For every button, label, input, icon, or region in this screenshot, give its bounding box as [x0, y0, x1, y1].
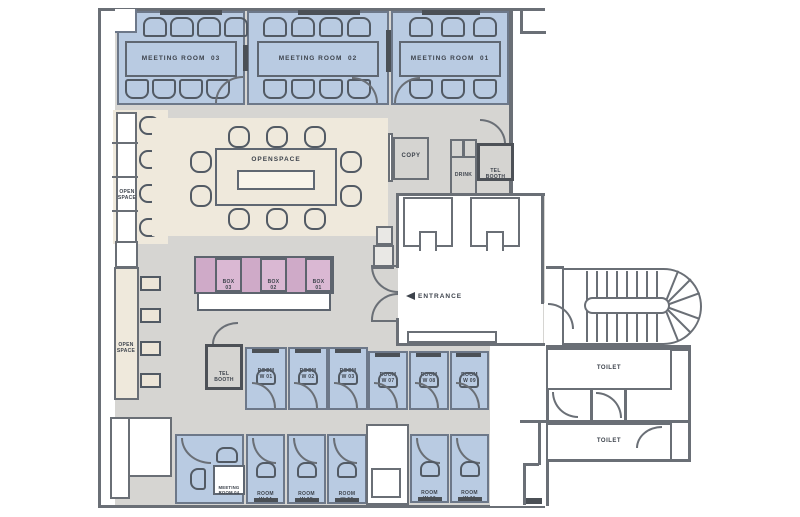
window-icon [160, 10, 222, 15]
wall [541, 196, 544, 304]
door-jamb [386, 30, 391, 72]
shaft-box [371, 468, 401, 498]
window-icon [295, 349, 321, 353]
stool-icon [140, 276, 161, 291]
storage-room-leg [110, 417, 130, 499]
chair-icon [216, 447, 238, 463]
chair-icon [224, 17, 248, 37]
chair-icon [347, 17, 371, 37]
wall [396, 343, 545, 346]
chair-icon [197, 17, 221, 37]
window-icon [416, 353, 441, 357]
chair-icon [266, 126, 288, 148]
chair-icon [319, 17, 343, 37]
wall [546, 462, 549, 506]
door-jamb [243, 45, 248, 71]
entry-mat [407, 331, 497, 343]
chair-icon [190, 185, 212, 207]
chair-icon [340, 151, 362, 173]
chair-icon [337, 462, 357, 478]
copy-label: COPY [393, 153, 429, 161]
window-icon [295, 498, 319, 502]
chair-icon [291, 17, 315, 37]
wall [546, 390, 549, 423]
chair-icon [143, 17, 167, 37]
openspace-table-inset [237, 170, 315, 190]
window-icon [456, 353, 481, 357]
window-icon [335, 498, 359, 502]
meeting-room-04-label: MEETINGROOM 04 [213, 474, 245, 495]
wall [688, 348, 691, 462]
tel-booth-top-label: TELBOOTH [477, 155, 514, 193]
window-icon [335, 349, 361, 353]
stool-icon [140, 308, 161, 323]
chair-icon [179, 79, 203, 99]
door-arc-icon [596, 392, 622, 418]
chair-icon [409, 17, 433, 37]
entrance-label: ENTRANCE [418, 293, 482, 301]
chair-icon [441, 79, 465, 99]
stool-icon [140, 373, 161, 388]
right-corridor [513, 11, 545, 195]
counter-divider [112, 142, 138, 144]
elevator-door-notch [419, 231, 437, 251]
chair-icon [190, 151, 212, 173]
window-icon [458, 497, 482, 501]
meeting-room-02-label: MEETING ROOM 02 [257, 55, 379, 63]
wall [520, 11, 523, 34]
chair-icon [256, 462, 276, 478]
entrance-arrow-icon [406, 292, 415, 300]
open-space-upper-label: OPENSPACE [110, 176, 144, 214]
toilet-upper-label: TOILET [559, 365, 659, 373]
window-icon [252, 349, 279, 353]
stair-handrail [584, 297, 670, 314]
counter-gap-box [115, 241, 138, 268]
chair-icon [190, 468, 206, 490]
chair-icon [473, 17, 497, 37]
wall [590, 390, 593, 423]
wall [520, 31, 546, 34]
chair-icon [263, 17, 287, 37]
chair-icon [297, 462, 317, 478]
chair-icon [460, 461, 480, 477]
door-leaf [371, 320, 399, 322]
window-icon [254, 498, 278, 502]
floor-plan: MEETING ROOM 03 MEETING ROOM 02 MEETING … [0, 0, 800, 517]
door-arc-icon [552, 392, 578, 418]
tel-booth-mid-label: TELBOOTH [205, 358, 243, 396]
meeting-room-03-label: MEETING ROOM 03 [125, 55, 237, 63]
wall [396, 318, 399, 346]
chair-icon [291, 79, 315, 99]
window-icon [418, 497, 442, 501]
chair-icon [441, 17, 465, 37]
chair-icon [304, 126, 326, 148]
chair-icon [228, 126, 250, 148]
drink-label: DRINK [449, 172, 478, 178]
window-icon [422, 10, 480, 15]
window-icon [298, 10, 360, 15]
meeting-room-01-label: MEETING ROOM 01 [399, 55, 501, 63]
chair-icon [304, 208, 326, 230]
wall [396, 193, 399, 268]
window-icon [375, 353, 400, 357]
room3-corner-notch [115, 9, 137, 33]
wall [538, 420, 541, 465]
window-icon [526, 498, 542, 504]
chair-icon [152, 79, 176, 99]
elevator-door-notch [486, 231, 504, 251]
wall [546, 459, 690, 462]
chair-icon [263, 79, 287, 99]
openspace-label: OPENSPACE [215, 156, 337, 164]
chair-icon [266, 208, 288, 230]
box-bench [197, 292, 331, 311]
chair-icon [473, 79, 497, 99]
chair-icon [170, 17, 194, 37]
chair-icon [228, 208, 250, 230]
wall [398, 193, 545, 196]
open-space-lower-label: OPENSPACE [110, 329, 142, 367]
wall [624, 390, 627, 423]
service-box [376, 226, 393, 245]
stool-icon [140, 341, 161, 356]
chair-icon [340, 185, 362, 207]
chair-icon [319, 79, 343, 99]
chair-icon [125, 79, 149, 99]
chair-icon [420, 461, 440, 477]
